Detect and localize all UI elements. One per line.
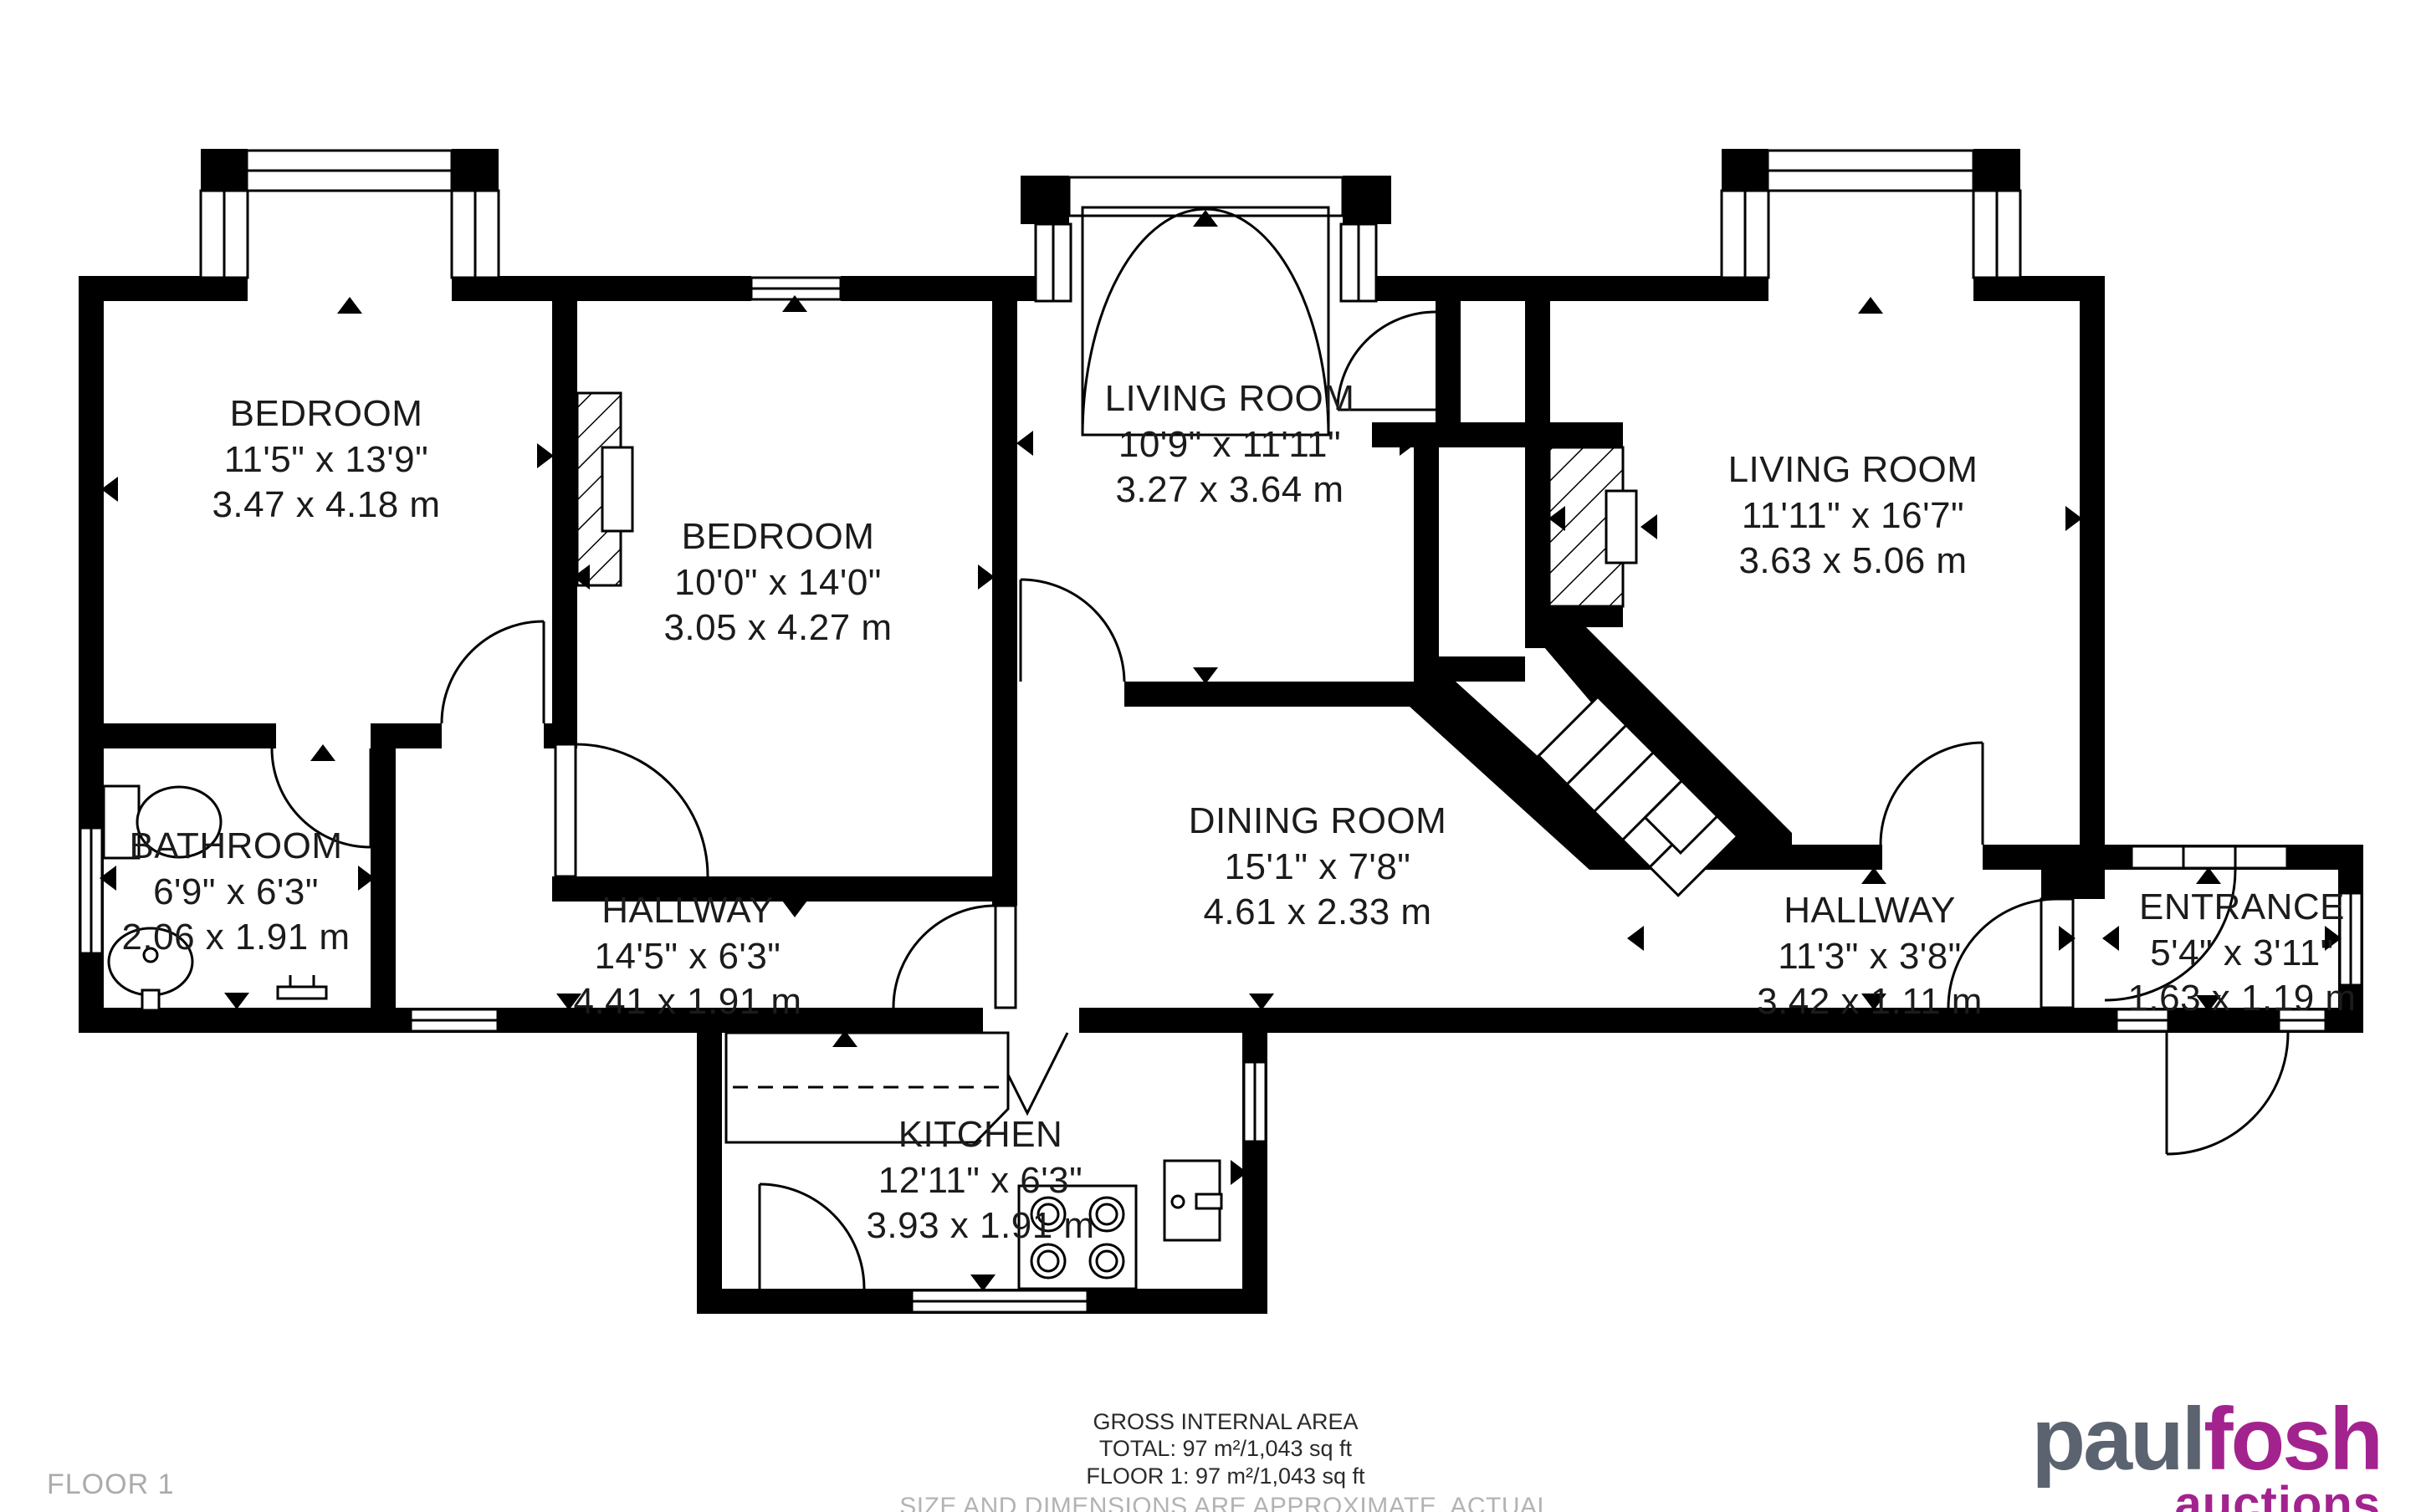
room-label-bedroom-1: BEDROOM 11'5" x 13'9" 3.47 x 4.18 m	[92, 391, 560, 529]
room-dim-imperial: 10'9" x 11'11"	[996, 422, 1464, 468]
room-dim-metric: 1.63 x 1.19 m	[2075, 976, 2409, 1022]
room-dim-imperial: 14'5" x 6'3"	[453, 934, 922, 980]
floor-plan-canvas	[0, 0, 2421, 1512]
room-name: BATHROOM	[2, 824, 470, 870]
room-dim-metric: 2.06 x 1.91 m	[2, 915, 470, 961]
dimension-arrow	[1858, 297, 1883, 314]
total-area: TOTAL: 97 m²/1,043 sq ft	[883, 1435, 1569, 1462]
room-dim-imperial: 11'11" x 16'7"	[1619, 493, 2087, 539]
dimension-arrow	[337, 297, 362, 314]
room-dim-imperial: 10'0" x 14'0"	[544, 560, 1012, 606]
floor-number-label: FLOOR 1	[47, 1469, 174, 1501]
room-dim-metric: 4.61 x 2.33 m	[1083, 890, 1552, 936]
room-dim-metric: 3.42 x 1.11 m	[1635, 979, 2104, 1025]
room-dim-metric: 3.05 x 4.27 m	[544, 605, 1012, 651]
walls-layer	[79, 149, 2363, 1314]
room-label-living-room-2: LIVING ROOM 11'11" x 16'7" 3.63 x 5.06 m	[1619, 447, 2087, 585]
room-name: DINING ROOM	[1083, 799, 1552, 845]
logo-part1: paul	[2031, 1390, 2203, 1489]
room-dim-imperial: 11'5" x 13'9"	[92, 437, 560, 483]
room-label-living-room-1: LIVING ROOM 10'9" x 11'11" 3.27 x 3.64 m	[996, 376, 1464, 513]
room-dim-imperial: 5'4" x 3'11"	[2075, 931, 2409, 977]
room-dim-metric: 3.47 x 4.18 m	[92, 483, 560, 529]
dimension-arrow	[310, 744, 335, 761]
room-name: HALLWAY	[453, 888, 922, 934]
logo-part2: fosh	[2203, 1390, 2381, 1489]
room-dim-metric: 4.41 x 1.91 m	[453, 979, 922, 1025]
room-dim-metric: 3.27 x 3.64 m	[996, 467, 1464, 513]
gross-area-title: GROSS INTERNAL AREA	[883, 1408, 1569, 1435]
room-label-bedroom-2: BEDROOM 10'0" x 14'0" 3.05 x 4.27 m	[544, 514, 1012, 651]
paul-fosh-auctions-logo: paulfosh auctions	[2031, 1395, 2381, 1512]
room-label-kitchen: KITCHEN 12'11" x 6'3" 3.93 x 1.91 m	[746, 1112, 1215, 1249]
room-dim-imperial: 6'9" x 6'3"	[2, 870, 470, 916]
floor-plan-page: BEDROOM 11'5" x 13'9" 3.47 x 4.18 m BEDR…	[0, 0, 2421, 1512]
room-label-bathroom: BATHROOM 6'9" x 6'3" 2.06 x 1.91 m	[2, 824, 470, 961]
room-name: HALLWAY	[1635, 888, 2104, 934]
dimension-arrows	[100, 210, 2342, 1291]
room-label-hallway-2: HALLWAY 11'3" x 3'8" 3.42 x 1.11 m	[1635, 888, 2104, 1025]
room-dim-metric: 3.63 x 5.06 m	[1619, 539, 2087, 585]
room-name: BEDROOM	[544, 514, 1012, 560]
room-name: LIVING ROOM	[1619, 447, 2087, 493]
room-name: BEDROOM	[92, 391, 560, 437]
disclaimer: SIZE AND DIMENSIONS ARE APPROXIMATE, ACT…	[883, 1492, 1569, 1512]
room-dim-imperial: 11'3" x 3'8"	[1635, 934, 2104, 980]
floor1-area: FLOOR 1: 97 m²/1,043 sq ft	[883, 1463, 1569, 1489]
room-name: LIVING ROOM	[996, 376, 1464, 422]
room-label-hallway-1: HALLWAY 14'5" x 6'3" 4.41 x 1.91 m	[453, 888, 922, 1025]
room-name: ENTRANCE	[2075, 885, 2409, 931]
dimension-arrow	[224, 993, 249, 1009]
room-label-dining-room: DINING ROOM 15'1" x 7'8" 4.61 x 2.33 m	[1083, 799, 1552, 936]
gross-internal-area-block: GROSS INTERNAL AREA TOTAL: 97 m²/1,043 s…	[883, 1408, 1569, 1512]
room-dim-imperial: 15'1" x 7'8"	[1083, 845, 1552, 891]
bath-taps	[278, 987, 326, 999]
room-name: KITCHEN	[746, 1112, 1215, 1158]
room-label-entrance: ENTRANCE 5'4" x 3'11" 1.63 x 1.19 m	[2075, 885, 2409, 1022]
room-dim-metric: 3.93 x 1.91 m	[746, 1203, 1215, 1249]
room-dim-imperial: 12'11" x 6'3"	[746, 1158, 1215, 1204]
